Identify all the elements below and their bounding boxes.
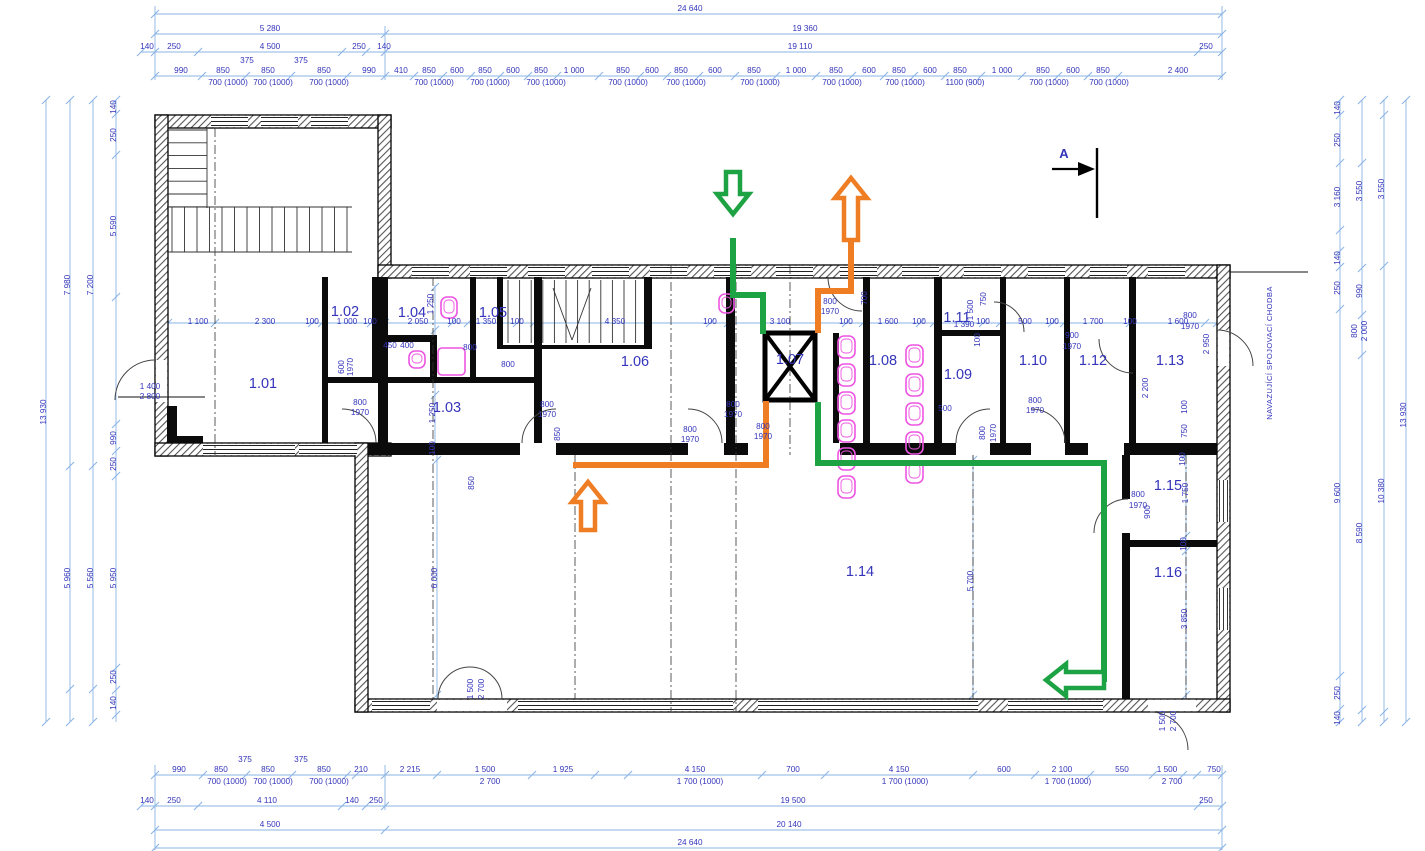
dim-label: 210	[354, 765, 368, 774]
dim-label: 1 100	[188, 317, 209, 326]
dim-label: 7 980	[63, 274, 72, 295]
dim-label: 800	[1183, 311, 1197, 320]
dim-label: 2 700	[1169, 710, 1178, 731]
dim-label: 700 (1000)	[253, 777, 293, 786]
dim-label: 450	[383, 341, 397, 350]
dim-label: 20 140	[776, 820, 801, 829]
dim-label: 1 700 (1000)	[677, 777, 724, 786]
dim-label: 140	[1333, 251, 1342, 265]
dim-label: 700 (1000)	[666, 78, 706, 87]
interior-wall	[1124, 443, 1217, 455]
toilet-icon	[841, 339, 852, 353]
dim-label: 1 500	[1157, 765, 1178, 774]
dim-label: 7 200	[86, 274, 95, 295]
dim-label: 375	[238, 755, 252, 764]
dim-label: 600	[506, 66, 520, 75]
dim-label: 375	[240, 56, 254, 65]
dim-label: 3 850	[1180, 608, 1189, 629]
dim-label: 250	[109, 128, 118, 142]
exit-arrow-orange-up	[835, 178, 867, 240]
dim-label: 1970	[754, 432, 773, 441]
dim-label: 8 590	[1355, 522, 1364, 543]
toilet-icon	[841, 479, 852, 493]
dim-label: 4 150	[685, 765, 706, 774]
dim-label: 100	[305, 317, 319, 326]
dim-label: 700 (1000)	[309, 777, 349, 786]
dim-label: 1970	[681, 435, 700, 444]
interior-wall	[990, 443, 1031, 455]
dim-label: 1 500	[1158, 710, 1167, 731]
dim-label: 250	[1333, 281, 1342, 295]
dim-label: 1 600	[878, 317, 899, 326]
dim-label: 4 350	[605, 317, 626, 326]
dim-label: 850	[829, 66, 843, 75]
dim-label: 700	[860, 291, 869, 305]
room-label: 1.11	[943, 310, 970, 326]
dim-label: 100	[510, 317, 524, 326]
dim-label: 990	[174, 66, 188, 75]
exterior-wall	[378, 115, 391, 278]
interior-wall	[1065, 443, 1088, 455]
dim-label: 700	[786, 765, 800, 774]
evacuation-routes	[573, 238, 1104, 682]
door-gap	[1218, 330, 1229, 366]
dim-label: 800	[501, 360, 515, 369]
dim-label: 1 700 (1000)	[1045, 777, 1092, 786]
dim-label: 2 950	[1202, 333, 1211, 354]
dim-label: 600	[337, 360, 346, 374]
dim-label: 250	[167, 796, 181, 805]
door-gap	[437, 700, 507, 711]
dim-label: 1970	[1129, 501, 1148, 510]
dim-label: 100	[703, 317, 717, 326]
interior-wall	[368, 443, 520, 455]
room-label: 1.04	[398, 305, 426, 321]
dim-label: 600	[997, 765, 1011, 774]
dim-label: 600	[862, 66, 876, 75]
dim-label: 990	[362, 66, 376, 75]
dimension-labels: 24 6405 28019 3601402504 50025014019 110…	[39, 4, 1408, 847]
dim-label: 2 215	[400, 765, 421, 774]
dim-label: 5 950	[109, 567, 118, 588]
dim-label: 900	[1065, 331, 1079, 340]
dim-label: 140	[1333, 101, 1342, 115]
dim-label: 1 500	[466, 678, 475, 699]
dim-label: 400	[400, 341, 414, 350]
dim-label: 2 700	[480, 777, 501, 786]
dim-label: 850	[892, 66, 906, 75]
dim-label: 500	[1018, 317, 1032, 326]
dim-label: 2 300	[255, 317, 276, 326]
interior-partitions	[167, 277, 1217, 699]
dim-label: 375	[294, 755, 308, 764]
dim-label: 500	[938, 404, 952, 413]
dim-label: 100	[1123, 317, 1137, 326]
dim-label: 1 500	[475, 765, 496, 774]
entry-arrow-green-down	[717, 172, 749, 214]
dim-label: 600	[450, 66, 464, 75]
exterior-wall	[355, 443, 368, 712]
dim-label: 100	[976, 317, 990, 326]
dim-label: 850	[1096, 66, 1110, 75]
interior-wall	[167, 436, 203, 443]
dim-label: 2 200	[1141, 377, 1150, 398]
room-label: 1.02	[331, 304, 359, 320]
dim-label: 700 (1000)	[740, 78, 780, 87]
dim-label: 1970	[989, 423, 998, 442]
dim-label: 750	[979, 292, 988, 306]
dim-label: 1970	[1181, 322, 1200, 331]
dim-label: 800	[683, 425, 697, 434]
dim-label: 5 960	[63, 567, 72, 588]
room-label: 1.15	[1154, 478, 1182, 494]
toilet-icon	[444, 300, 454, 313]
dim-label: 750	[1180, 424, 1189, 438]
dim-label: 850	[467, 476, 476, 490]
dim-label: 800	[463, 343, 477, 352]
room-label: 1.10	[1019, 353, 1047, 369]
dim-label: 24 640	[677, 4, 702, 13]
dim-label: 700 (1000)	[526, 78, 566, 87]
interior-wall	[1129, 277, 1136, 443]
dim-label: 700 (1000)	[253, 78, 293, 87]
dim-label: 1 925	[553, 765, 574, 774]
room-label: 1.13	[1156, 353, 1184, 369]
dim-label: 800	[978, 426, 987, 440]
interior-wall	[497, 345, 652, 349]
green-route-entry	[733, 238, 763, 334]
room-label: 1.12	[1079, 353, 1107, 369]
shower-icon	[438, 348, 465, 375]
dim-label: 10 380	[1377, 478, 1386, 503]
dim-label: 990	[1355, 284, 1364, 298]
dim-label: 2 800	[140, 392, 161, 401]
dim-label: 250	[1199, 796, 1213, 805]
toilet-icon	[841, 395, 852, 409]
urinal-icon	[909, 377, 920, 391]
dim-label: 3 160	[1333, 186, 1342, 207]
dim-label: 800	[1028, 396, 1042, 405]
section-marker: A	[1052, 146, 1097, 218]
dim-label: 700 (1000)	[1029, 78, 1069, 87]
dim-label: 1970	[346, 357, 355, 376]
dim-label: 250	[352, 42, 366, 51]
dim-label: 700 (1000)	[309, 78, 349, 87]
interior-wall	[644, 277, 652, 349]
dim-label: 850	[674, 66, 688, 75]
dim-label: 3 550	[1377, 178, 1386, 199]
dim-label: 1970	[1026, 406, 1045, 415]
section-arrowhead	[1078, 162, 1095, 176]
dim-label: 750	[1207, 765, 1221, 774]
room-label: 1.05	[479, 305, 507, 321]
dim-label: 850	[317, 66, 331, 75]
dim-label: 250	[109, 670, 118, 684]
dim-label: 140	[345, 796, 359, 805]
dim-label: 700 (1000)	[822, 78, 862, 87]
dim-label: 850	[747, 66, 761, 75]
interior-wall	[385, 377, 534, 383]
toilet-icon	[841, 423, 852, 437]
dim-label: 250	[1333, 133, 1342, 147]
interior-wall	[322, 277, 328, 443]
door-gap	[1148, 700, 1196, 711]
dim-label: 1970	[1063, 342, 1082, 351]
dim-label: 850	[1036, 66, 1050, 75]
dim-label: 100	[1045, 317, 1059, 326]
toilet-icon	[841, 367, 852, 381]
dim-label: 800	[726, 400, 740, 409]
urinal-icon	[909, 464, 920, 478]
dim-label: 600	[923, 66, 937, 75]
route-arrow-orange-up	[572, 482, 604, 530]
room-label: 1.09	[944, 367, 972, 383]
dim-label: 700 (1000)	[1089, 78, 1129, 87]
dim-label: 5 280	[260, 24, 281, 33]
room-label: 1.01	[249, 376, 277, 392]
corridor-note: NAVAZUJÍCÍ SPOJOVACÍ CHODBA	[1265, 286, 1274, 420]
dim-label: 800	[353, 398, 367, 407]
dim-label: 4 500	[260, 42, 281, 51]
dim-label: 13 930	[39, 399, 48, 424]
dim-label: 140	[109, 100, 118, 114]
dim-label: 800	[1131, 490, 1145, 499]
route-arrow-green-left	[1046, 664, 1104, 696]
sink-icon	[412, 354, 422, 363]
dim-label: 375	[294, 56, 308, 65]
dim-label: 1 000	[992, 66, 1013, 75]
dim-label: 2 700	[477, 678, 486, 699]
floor-plan-page: A 24 6405 28019 3601402504 50025014019 1…	[0, 0, 1425, 851]
room-label: 1.08	[869, 353, 897, 369]
room-label: 1.14	[846, 564, 874, 580]
interior-wall	[378, 277, 388, 443]
room-label: 1.03	[433, 400, 461, 416]
dim-label: 1970	[351, 408, 370, 417]
dim-label: 4 150	[889, 765, 910, 774]
dim-label: 990	[172, 765, 186, 774]
dim-label: 2 000	[1360, 320, 1369, 341]
dim-label: 600	[645, 66, 659, 75]
door-swing-arc	[1094, 499, 1128, 533]
dim-label: 600	[708, 66, 722, 75]
interior-wall	[430, 335, 437, 380]
urinal-icon	[909, 406, 920, 420]
dim-label: 100	[839, 317, 853, 326]
interior-wall	[1122, 455, 1130, 499]
dim-label: 850	[261, 765, 275, 774]
dim-label: 700 (1000)	[470, 78, 510, 87]
dim-label: 800	[540, 400, 554, 409]
dim-label: 100	[1179, 537, 1188, 551]
dim-label: 100	[1178, 452, 1187, 466]
dim-label: 100	[428, 441, 437, 455]
dim-label: 2 700	[1162, 777, 1183, 786]
dim-label: 140	[109, 696, 118, 710]
dim-label: 850	[953, 66, 967, 75]
dim-label: 140	[1333, 711, 1342, 725]
dim-label: 3 100	[770, 317, 791, 326]
dim-label: 1 700	[1083, 317, 1104, 326]
dim-label: 1970	[538, 410, 557, 419]
dim-label: 3 550	[1355, 180, 1364, 201]
floor-plan-canvas: A 24 6405 28019 3601402504 50025014019 1…	[0, 0, 1425, 851]
dim-label: 19 500	[780, 796, 805, 805]
interior-wall	[934, 277, 942, 443]
interior-wall	[1064, 277, 1070, 443]
dim-label: 100	[973, 333, 982, 347]
dim-label: 850	[478, 66, 492, 75]
dim-label: 9 600	[1333, 482, 1342, 503]
dim-label: 13 930	[1399, 402, 1408, 427]
stair-direction-mark	[572, 288, 591, 340]
interior-wall	[1130, 540, 1217, 547]
dim-label: 1 750	[1181, 482, 1190, 503]
dim-label: 1 700 (1000)	[882, 777, 929, 786]
dim-label: 850	[534, 66, 548, 75]
interior-wall	[940, 330, 1004, 336]
dim-label: 850	[553, 427, 562, 441]
dim-label: 2 400	[1168, 66, 1189, 75]
interior-wall	[1122, 533, 1130, 699]
dim-label: 850	[616, 66, 630, 75]
dim-label: 1970	[724, 410, 743, 419]
stair-direction-mark	[553, 288, 572, 340]
dim-label: 1 000	[786, 66, 807, 75]
dim-label: 140	[140, 42, 154, 51]
dim-label: 5 590	[109, 215, 118, 236]
room-label: 1.07	[776, 352, 804, 368]
interior-wall	[322, 377, 378, 383]
dim-label: 250	[1199, 42, 1213, 51]
dim-label: 800	[1350, 324, 1359, 338]
dim-label: 250	[109, 457, 118, 471]
dim-label: 800	[756, 422, 770, 431]
dim-label: 850	[422, 66, 436, 75]
dim-label: 6 000	[430, 567, 439, 588]
dim-label: 2 100	[1052, 765, 1073, 774]
dim-label: 250	[1333, 686, 1342, 700]
dim-label: 100	[447, 317, 461, 326]
interior-wall	[1000, 277, 1006, 443]
interior-wall	[470, 277, 476, 380]
interior-wall	[840, 443, 956, 455]
dim-label: 700 (1000)	[608, 78, 648, 87]
dim-label: 100	[1180, 400, 1189, 414]
dim-label: 100	[363, 317, 377, 326]
dim-label: 100	[912, 317, 926, 326]
dim-label: 700 (1000)	[208, 78, 248, 87]
dim-label: 24 640	[677, 838, 702, 847]
urinal-icon	[909, 348, 920, 362]
dim-label: 850	[261, 66, 275, 75]
dim-label: 1 250	[426, 293, 435, 314]
dim-label: 250	[369, 796, 383, 805]
dim-label: 850	[317, 765, 331, 774]
dim-label: 800	[823, 297, 837, 306]
dim-label: 700 (1000)	[885, 78, 925, 87]
dim-label: 5 700	[966, 570, 975, 591]
room-label: 1.16	[1154, 565, 1182, 581]
dim-label: 250	[167, 42, 181, 51]
section-letter: A	[1059, 146, 1069, 161]
dim-label: 600	[1066, 66, 1080, 75]
dim-label: 4 110	[257, 796, 277, 805]
dim-label: 700 (1000)	[207, 777, 247, 786]
dim-label: 19 360	[792, 24, 817, 33]
dim-label: 550	[1115, 765, 1129, 774]
dim-label: 850	[214, 765, 228, 774]
dim-label: 1100 (900)	[946, 78, 985, 87]
dim-label: 140	[140, 796, 154, 805]
room-label: 1.06	[621, 354, 649, 370]
dim-label: 1970	[821, 307, 840, 316]
dim-label: 5 560	[86, 567, 95, 588]
exterior-wall	[155, 115, 168, 456]
dim-label: 1 000	[564, 66, 585, 75]
dim-label: 850	[216, 66, 230, 75]
dim-label: 140	[377, 42, 391, 51]
dim-label: 19 110	[788, 42, 813, 51]
interior-wall	[556, 443, 688, 455]
dim-label: 990	[109, 431, 118, 445]
dim-label: 4 500	[260, 820, 281, 829]
dim-label: 700 (1000)	[414, 78, 454, 87]
dim-label: 1 400	[140, 382, 161, 391]
dim-label: 410	[394, 66, 408, 75]
